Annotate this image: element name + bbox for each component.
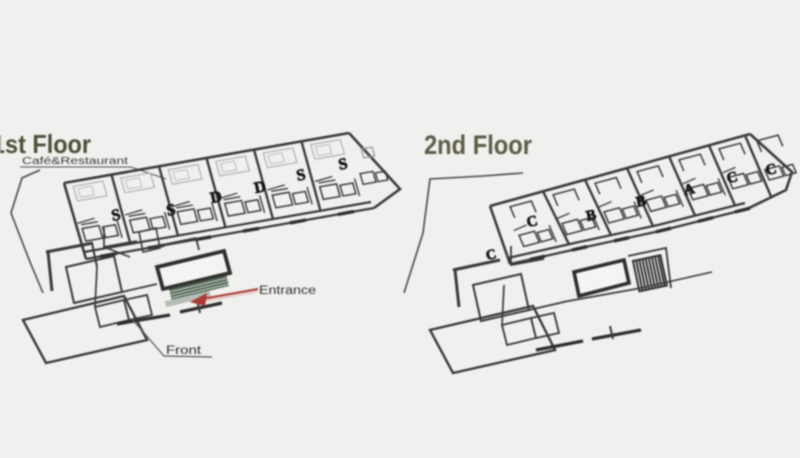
svg-text:Front: Front [166, 345, 202, 357]
svg-text:Café&Restaurant: Café&Restaurant [22, 156, 128, 167]
svg-text:1st Floor: 1st Floor [0, 129, 91, 159]
svg-text:C: C [764, 161, 778, 179]
svg-text:B: B [635, 193, 648, 211]
svg-text:2nd Floor: 2nd Floor [424, 130, 532, 160]
svg-text:S: S [165, 201, 177, 219]
svg-text:D: D [253, 178, 268, 197]
svg-text:B: B [585, 207, 598, 225]
svg-text:Entrance: Entrance [259, 285, 316, 297]
svg-text:S: S [337, 155, 349, 173]
svg-text:C: C [725, 169, 739, 187]
svg-text:A: A [682, 181, 696, 199]
svg-text:S: S [295, 166, 307, 184]
svg-text:C: C [525, 213, 539, 231]
svg-text:D: D [209, 188, 224, 207]
